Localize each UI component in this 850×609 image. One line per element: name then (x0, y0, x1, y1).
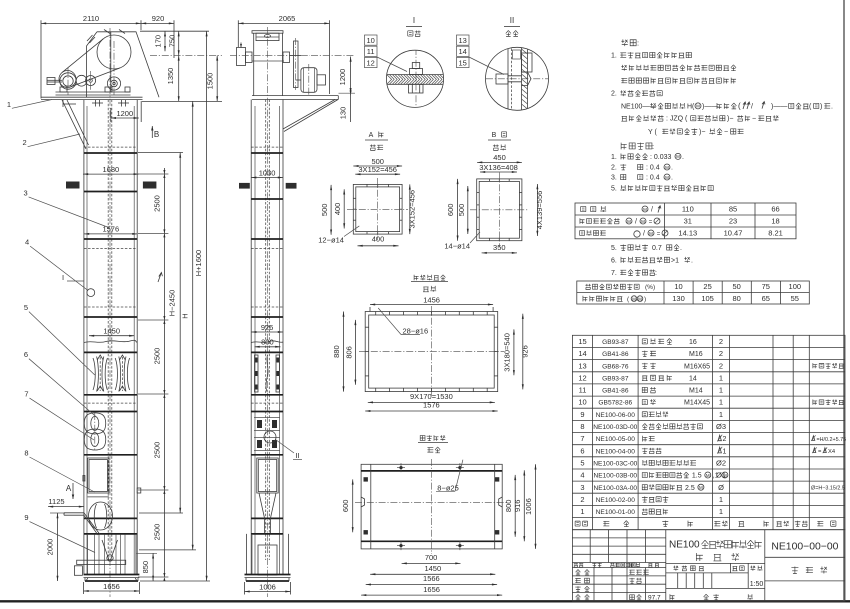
svg-text:Ø2: Ø2 (716, 459, 726, 468)
svg-text:B: B (154, 130, 159, 139)
svg-text:NE100-05-00: NE100-05-00 (596, 436, 636, 443)
svg-text:750: 750 (167, 35, 176, 48)
svg-text:: 0.4: : 0.4 (646, 175, 660, 182)
svg-text:GB41-86: GB41-86 (602, 351, 629, 358)
svg-text:): ) (820, 103, 822, 110)
svg-text:X4: X4 (828, 449, 836, 455)
svg-text:10: 10 (674, 282, 682, 291)
svg-text:GB68-76: GB68-76 (602, 363, 629, 370)
svg-text:5: 5 (580, 459, 584, 468)
svg-text:.: . (691, 257, 693, 264)
svg-text:1.: 1. (611, 154, 617, 161)
svg-text:2500: 2500 (153, 524, 162, 541)
svg-text:=H/0.2+5.75: =H/0.2+5.75 (817, 437, 847, 443)
svg-text:66: 66 (771, 205, 779, 214)
svg-text:1: 1 (719, 507, 723, 516)
svg-text:)——: )—— (771, 103, 787, 110)
svg-text:7: 7 (580, 434, 584, 443)
svg-text:1: 1 (7, 100, 11, 109)
svg-text:M16: M16 (689, 351, 703, 358)
svg-text:110: 110 (682, 205, 694, 214)
svg-text:700: 700 (425, 553, 438, 562)
svg-text:NE100−00−00: NE100−00−00 (771, 542, 838, 553)
svg-text:2110: 2110 (83, 14, 99, 23)
svg-text:14: 14 (689, 375, 697, 382)
svg-text:Ø=H−3.15/2.5: Ø=H−3.15/2.5 (811, 485, 845, 491)
svg-text:65: 65 (762, 294, 770, 303)
svg-text:5: 5 (24, 303, 28, 312)
svg-text:600: 600 (446, 204, 455, 217)
svg-text:11: 11 (367, 47, 375, 56)
svg-text:1: 1 (719, 495, 723, 504)
svg-text:14: 14 (459, 47, 467, 56)
svg-text:.: . (671, 175, 673, 182)
svg-text:11: 11 (579, 386, 587, 395)
svg-text:916: 916 (513, 500, 522, 513)
svg-text:100: 100 (789, 282, 802, 291)
svg-text:806: 806 (344, 346, 353, 359)
svg-text:2: 2 (719, 349, 723, 358)
svg-text:2000: 2000 (45, 539, 54, 556)
svg-text:10: 10 (578, 398, 586, 407)
svg-text:I: I (62, 273, 64, 282)
svg-text:: JZQ (: : JZQ ( (666, 116, 688, 123)
svg-text:8.21: 8.21 (768, 229, 783, 238)
svg-text:80: 80 (733, 294, 741, 303)
svg-text:II: II (510, 16, 514, 25)
svg-text:M: M (706, 473, 710, 478)
svg-text:NE100-04-00: NE100-04-00 (596, 448, 636, 455)
svg-text:3X136=408: 3X136=408 (479, 163, 518, 172)
svg-text:7: 7 (24, 390, 28, 399)
svg-text:14: 14 (578, 349, 586, 358)
svg-text:H−2450: H−2450 (168, 290, 177, 316)
svg-text:10: 10 (367, 36, 375, 45)
svg-text:500: 500 (457, 204, 466, 217)
svg-text:: 0.033: : 0.033 (650, 154, 672, 161)
svg-text:1: 1 (580, 507, 584, 516)
svg-text:Ø3: Ø3 (716, 422, 726, 431)
svg-text:M: M (676, 154, 680, 159)
svg-text:A: A (369, 132, 374, 139)
svg-text:/: / (751, 103, 753, 110)
svg-text:NE100-03D-00: NE100-03D-00 (593, 424, 637, 431)
svg-text:H: H (181, 313, 190, 318)
svg-text:)−: )− (727, 116, 733, 123)
svg-text:23: 23 (729, 217, 737, 226)
svg-text:3: 3 (24, 188, 28, 197)
svg-text:/: / (651, 207, 653, 214)
svg-text:M: M (641, 219, 645, 224)
svg-text:450: 450 (493, 153, 506, 162)
svg-text:.: . (831, 103, 833, 110)
svg-text:9: 9 (580, 410, 584, 419)
svg-text:: 0.4: : 0.4 (646, 165, 660, 172)
svg-text:1450: 1450 (424, 564, 441, 573)
svg-text:400: 400 (333, 203, 342, 216)
svg-text:H+1600: H+1600 (194, 250, 203, 276)
svg-text:NE100-02-00: NE100-02-00 (596, 497, 636, 504)
svg-text:880: 880 (332, 345, 341, 358)
svg-text:2065: 2065 (279, 14, 296, 23)
svg-text:8: 8 (24, 449, 28, 458)
svg-text:4X139=556: 4X139=556 (535, 191, 544, 230)
svg-text:926: 926 (520, 345, 529, 358)
svg-text:850: 850 (141, 561, 150, 574)
svg-text:1:50: 1:50 (750, 581, 764, 588)
svg-text::: : (655, 270, 657, 277)
svg-text:2.5: 2.5 (685, 485, 695, 492)
svg-text:10.47: 10.47 (724, 229, 743, 238)
svg-text:1656: 1656 (103, 582, 120, 591)
svg-text:GB41-86: GB41-86 (602, 388, 629, 395)
svg-text:170: 170 (154, 35, 163, 48)
svg-text:1680: 1680 (103, 165, 120, 174)
svg-text:=: = (649, 220, 653, 226)
svg-text:12−ø14: 12−ø14 (318, 235, 344, 244)
svg-text:.: . (680, 245, 682, 252)
svg-text:II: II (295, 451, 299, 460)
svg-text:2.: 2. (611, 165, 617, 172)
svg-text:M: M (632, 296, 636, 301)
svg-text:M: M (696, 104, 700, 109)
svg-text:M: M (699, 485, 703, 490)
svg-text:6: 6 (580, 446, 584, 455)
svg-text:12: 12 (578, 373, 586, 382)
svg-text:M: M (665, 175, 669, 180)
svg-text:15: 15 (459, 58, 467, 67)
svg-text:9: 9 (24, 513, 28, 522)
svg-text:1125: 1125 (48, 497, 64, 506)
svg-text:2500: 2500 (153, 195, 162, 212)
svg-text:1: 1 (719, 386, 723, 395)
svg-text:1576: 1576 (423, 401, 440, 410)
svg-text:1200: 1200 (116, 109, 133, 118)
svg-text:105: 105 (701, 294, 714, 303)
svg-text:−: − (752, 116, 756, 123)
svg-text:1456: 1456 (423, 295, 440, 304)
svg-text:>1: >1 (671, 257, 679, 264)
svg-text:2.: 2. (611, 91, 617, 98)
svg-text:M: M (649, 231, 653, 236)
svg-text:1006: 1006 (524, 498, 533, 515)
svg-text:B: B (492, 132, 497, 139)
svg-text:500: 500 (320, 204, 329, 217)
svg-text:M: M (638, 296, 642, 301)
svg-text:1: 1 (719, 373, 723, 382)
svg-text:Y (: Y ( (648, 129, 657, 136)
svg-text:3X152=456: 3X152=456 (408, 190, 417, 229)
svg-text:8: 8 (580, 422, 584, 431)
svg-text:4: 4 (25, 238, 29, 247)
svg-text:)——: )—— (702, 103, 718, 110)
svg-text:M16X65: M16X65 (684, 363, 710, 370)
svg-text:/: / (635, 219, 637, 226)
svg-text:1: 1 (719, 398, 723, 407)
svg-text:M: M (627, 219, 631, 224)
svg-text:)−: )− (699, 129, 705, 136)
svg-text:0.7: 0.7 (652, 245, 662, 252)
svg-text:25: 25 (703, 282, 711, 291)
svg-text:2: 2 (580, 495, 584, 504)
svg-text:85: 85 (729, 205, 737, 214)
svg-text:13: 13 (459, 36, 467, 45)
svg-text:(: ( (738, 101, 741, 110)
svg-text:50: 50 (733, 282, 741, 291)
svg-text:12: 12 (367, 58, 375, 67)
svg-text:NE100-01-00: NE100-01-00 (596, 509, 636, 516)
svg-text:M: M (665, 165, 669, 170)
svg-text:GB5782-86: GB5782-86 (598, 400, 632, 407)
svg-text:NE100-03B-00: NE100-03B-00 (593, 473, 637, 480)
svg-text:Ø1: Ø1 (716, 471, 726, 480)
svg-text:.: . (682, 154, 684, 161)
svg-text:M14X45: M14X45 (684, 400, 710, 407)
svg-text:3: 3 (580, 483, 584, 492)
svg-text:Ø: Ø (718, 483, 724, 492)
svg-text::: : (652, 142, 654, 151)
svg-text:400: 400 (372, 235, 385, 244)
svg-text::: : (637, 39, 639, 48)
svg-text:2: 2 (719, 337, 723, 346)
svg-text:1: 1 (723, 448, 727, 455)
svg-text:2: 2 (23, 138, 27, 147)
svg-text:18: 18 (771, 217, 779, 226)
svg-text:A: A (66, 484, 72, 493)
svg-text:31: 31 (684, 217, 692, 226)
svg-text:1200: 1200 (338, 69, 347, 86)
svg-text:/: / (643, 231, 645, 238)
svg-text:55: 55 (791, 294, 799, 303)
svg-text:6: 6 (24, 350, 28, 359)
svg-text:NE100-03C-00: NE100-03C-00 (593, 461, 637, 468)
svg-text:130: 130 (339, 107, 348, 120)
svg-text:2: 2 (723, 436, 727, 443)
svg-text:): ) (644, 296, 646, 303)
svg-text:2500: 2500 (153, 442, 162, 459)
svg-text:75: 75 (762, 282, 770, 291)
svg-text:926: 926 (261, 323, 274, 332)
svg-text:3X180=540: 3X180=540 (502, 333, 511, 372)
svg-text:13: 13 (578, 361, 586, 370)
svg-text:.: . (671, 165, 673, 172)
svg-text:800: 800 (504, 500, 513, 513)
svg-text:NE100: NE100 (669, 540, 700, 551)
svg-text:97.7: 97.7 (648, 594, 661, 601)
svg-text:1450: 1450 (103, 327, 120, 336)
svg-text:−: − (724, 129, 728, 136)
svg-text:1006: 1006 (259, 582, 276, 591)
svg-text:M14: M14 (689, 388, 703, 395)
svg-text:130: 130 (672, 294, 685, 303)
svg-text:14.13: 14.13 (678, 229, 697, 238)
svg-text:=: = (657, 232, 661, 238)
svg-text:14−ø14: 14−ø14 (444, 241, 470, 250)
svg-text:920: 920 (152, 14, 165, 23)
svg-text:2500: 2500 (153, 348, 162, 365)
svg-text:800: 800 (261, 338, 274, 347)
svg-text:3X152=456: 3X152=456 (358, 165, 397, 174)
svg-text:1030: 1030 (259, 168, 276, 177)
svg-text:7.: 7. (611, 270, 617, 277)
svg-text:NE100-06-00: NE100-06-00 (596, 412, 636, 419)
svg-text:600: 600 (341, 500, 350, 513)
svg-text:350: 350 (493, 243, 506, 252)
svg-text:1566: 1566 (423, 574, 440, 583)
svg-text:1350: 1350 (166, 68, 175, 85)
svg-text:M: M (643, 207, 647, 212)
svg-text:1: 1 (719, 410, 723, 419)
svg-text:1.: 1. (611, 53, 617, 60)
svg-text:GB93-87: GB93-87 (602, 375, 629, 382)
svg-text:H(: H( (687, 103, 695, 110)
svg-text:16: 16 (689, 339, 697, 346)
svg-text:15: 15 (578, 337, 586, 346)
svg-text:5.: 5. (611, 245, 617, 252)
svg-text:6.: 6. (611, 257, 617, 264)
svg-text:GB93-87: GB93-87 (602, 339, 629, 346)
svg-text:4: 4 (580, 471, 584, 480)
svg-text:5.: 5. (611, 186, 617, 193)
svg-text:9X170=1530: 9X170=1530 (410, 392, 453, 401)
svg-text:3.: 3. (611, 175, 617, 182)
svg-text:1656: 1656 (423, 585, 440, 594)
svg-text:I: I (413, 16, 415, 25)
svg-text:2: 2 (719, 361, 723, 370)
svg-text:1.5: 1.5 (692, 473, 702, 480)
svg-text:NE100-03A-00: NE100-03A-00 (593, 485, 637, 492)
svg-text:(%): (%) (645, 284, 655, 291)
